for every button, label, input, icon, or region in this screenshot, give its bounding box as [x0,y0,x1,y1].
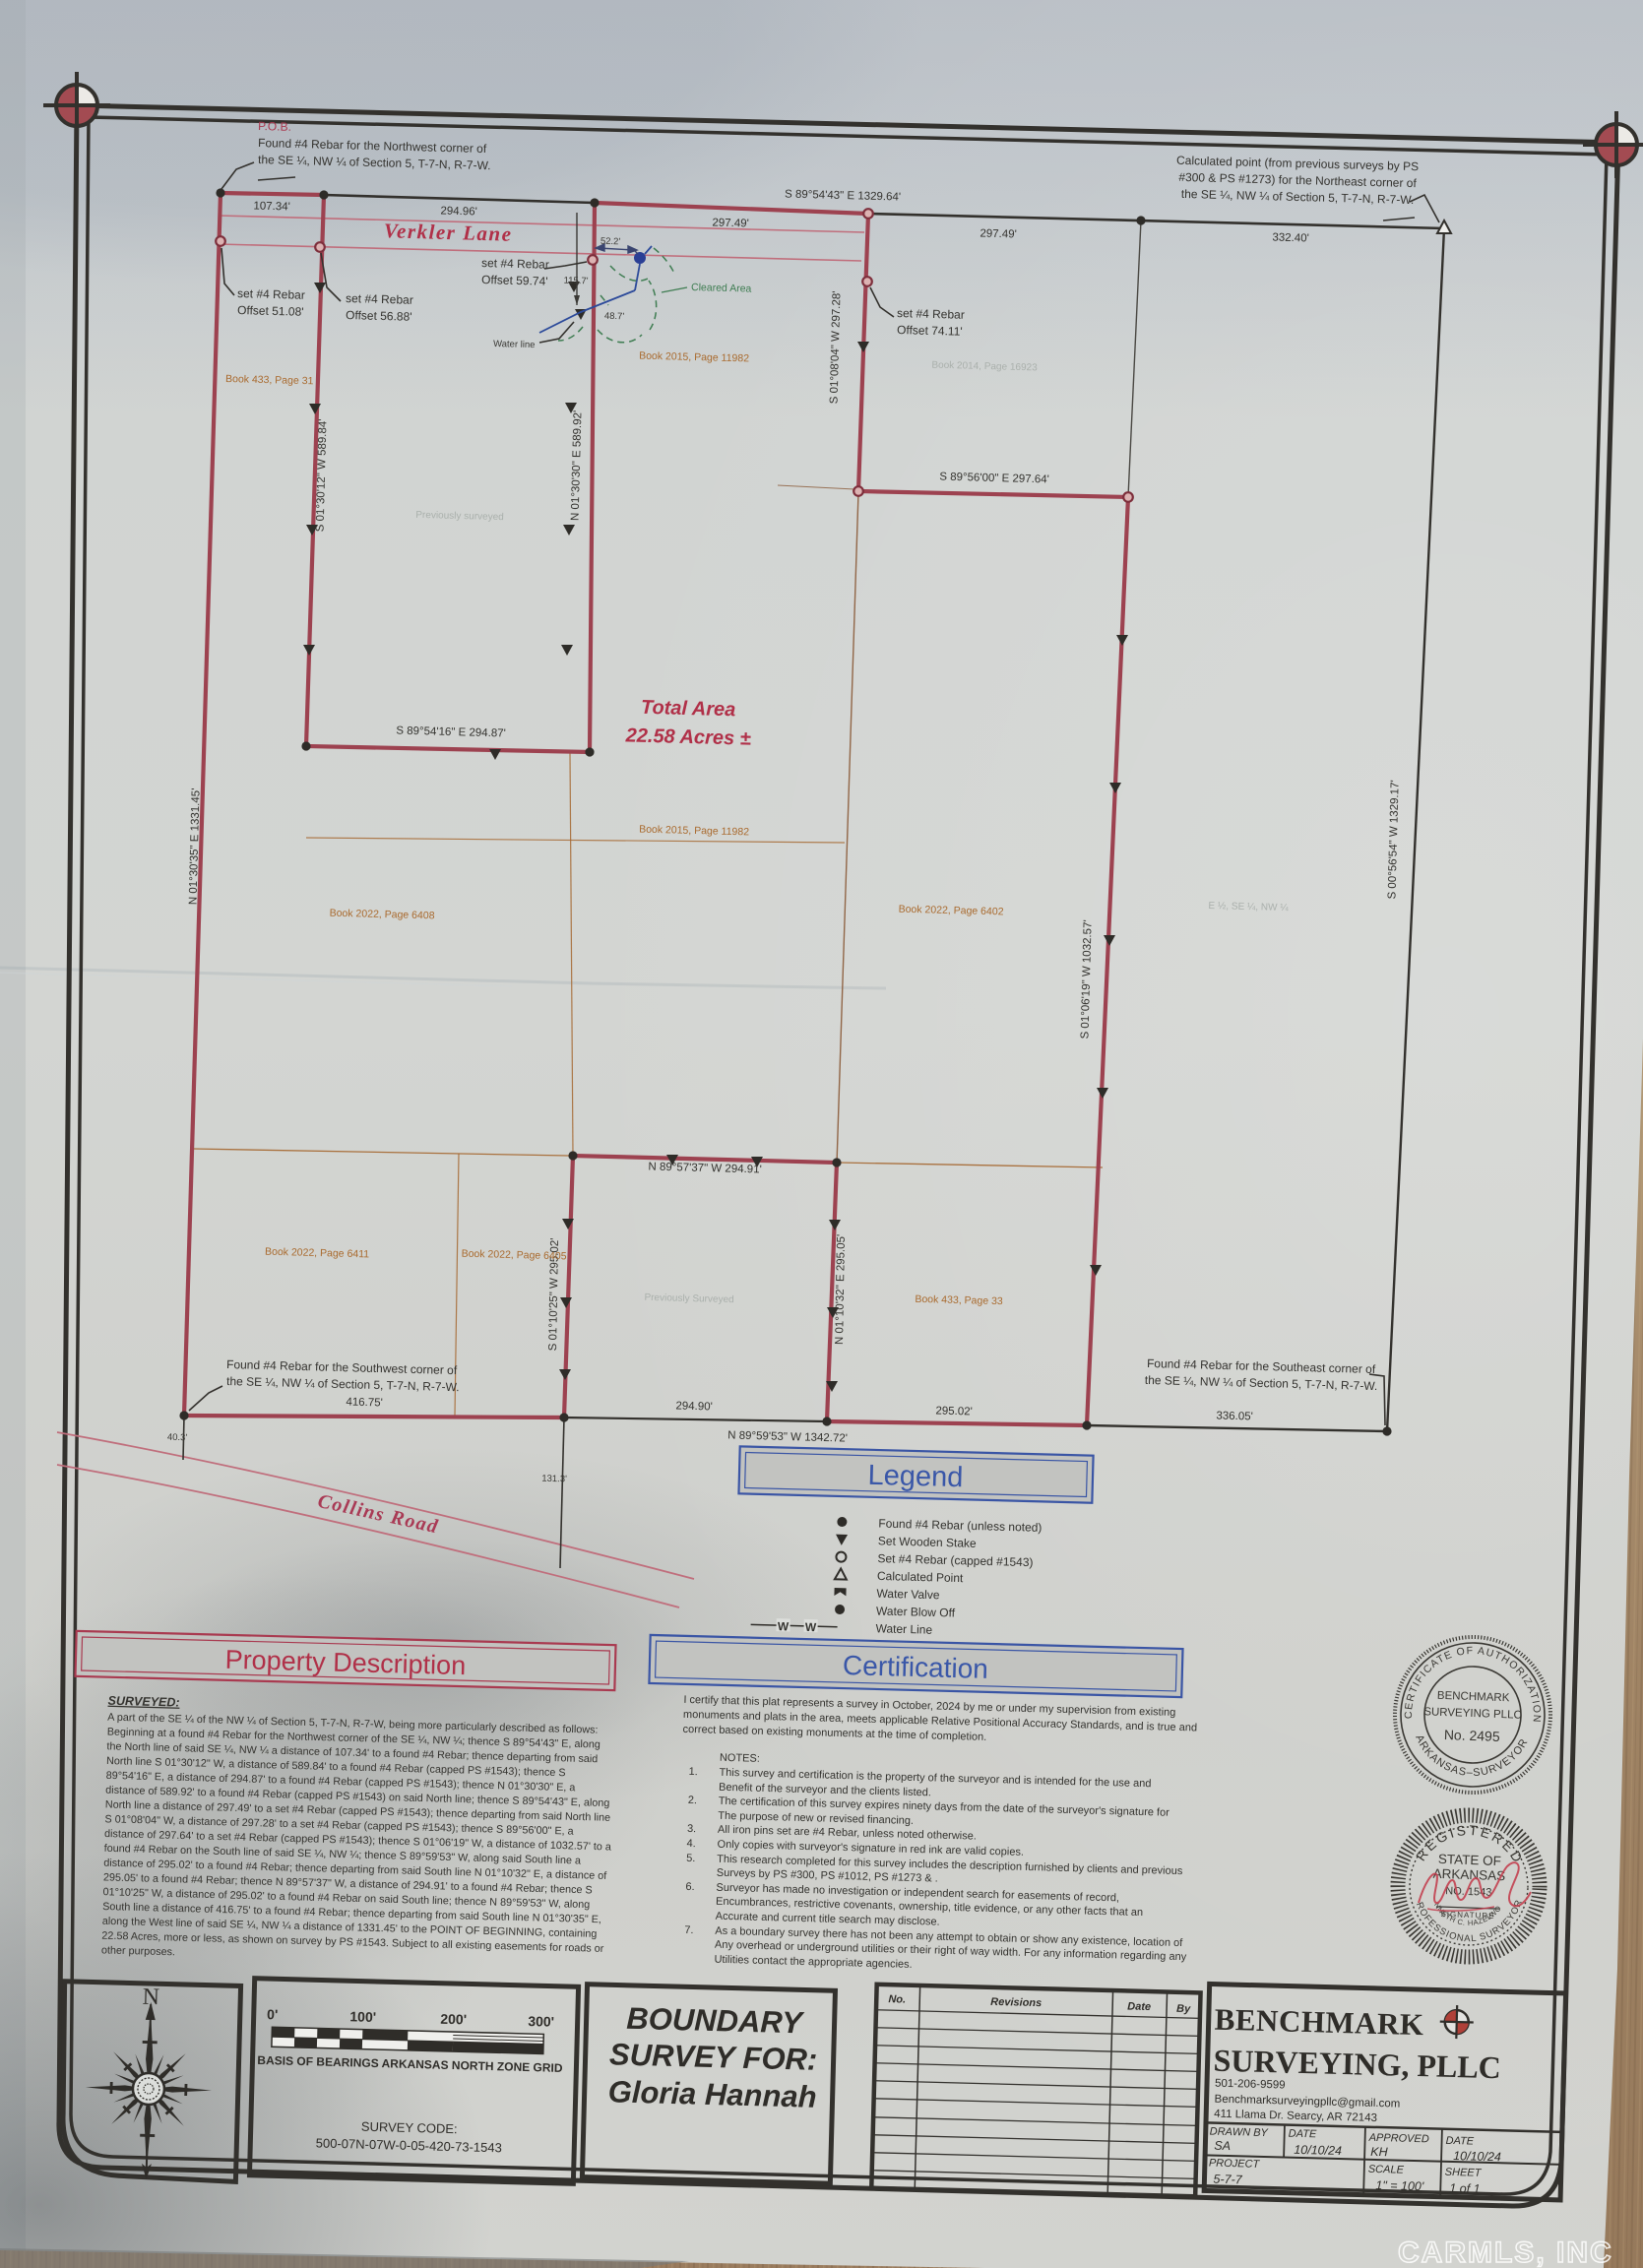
svg-text:48.7': 48.7' [604,311,625,323]
svg-text:NOTES:: NOTES: [720,1752,760,1765]
svg-text:336.05': 336.05' [1216,1411,1253,1423]
svg-text:W: W [778,1619,790,1633]
svg-text:BOUNDARYSURVEY FOR:Gloria Hann: BOUNDARYSURVEY FOR:Gloria Hannah [607,2000,819,2114]
svg-text:Book 433, Page 31: Book 433, Page 31 [225,373,314,387]
svg-text:CARMLS, INC: CARMLS, INC [1398,2236,1613,2268]
svg-text:416.75': 416.75' [346,1397,383,1410]
svg-text:No. 2495: No. 2495 [1444,1727,1501,1744]
svg-text:E ½, SE ¼, NW ¼: E ½, SE ¼, NW ¼ [1208,900,1289,913]
svg-text:Book 433, Page 33: Book 433, Page 33 [915,1293,1003,1307]
svg-text:BENCHMARK: BENCHMARK [1214,2002,1424,2043]
svg-text:Offset 59.74': Offset 59.74' [481,273,548,288]
svg-text:set #4 Rebar: set #4 Rebar [346,291,413,307]
svg-text:52.2': 52.2' [600,236,621,248]
svg-text:Verkler Lane: Verkler Lane [384,219,513,246]
svg-text:Water Valve: Water Valve [876,1587,940,1603]
svg-text:40.3': 40.3' [167,1432,188,1444]
svg-text:295.02': 295.02' [935,1406,973,1418]
svg-text:294.90': 294.90' [675,1401,713,1414]
svg-text:107.34': 107.34' [253,201,290,214]
svg-text:Cleared Area: Cleared Area [691,282,752,295]
svg-text:set #4 Rebar: set #4 Rebar [237,286,305,302]
svg-text:297.49': 297.49' [712,218,749,230]
svg-text:W: W [805,1620,817,1634]
svg-text:Set Wooden Stake: Set Wooden Stake [878,1534,978,1550]
svg-text:22.58 Acres ±: 22.58 Acres ± [624,724,751,749]
svg-text:Calculated Point: Calculated Point [877,1569,964,1585]
svg-text:297.49': 297.49' [979,228,1017,241]
svg-text:Water Blow Off: Water Blow Off [876,1604,956,1619]
svg-text:115.7': 115.7' [563,276,588,287]
svg-text:294.96': 294.96' [440,206,477,219]
svg-text:set #4 Rebar: set #4 Rebar [481,256,549,272]
svg-text:P.O.B.: P.O.B. [258,119,291,134]
svg-text:Water Line: Water Line [875,1621,932,1637]
svg-text:N: N [142,1984,159,2010]
svg-text:Certification: Certification [843,1650,989,1684]
svg-text:N 01°10'32" E 295.05': N 01°10'32" E 295.05' [834,1234,848,1345]
svg-text:Previously surveyed: Previously surveyed [415,510,504,523]
svg-text:332.40': 332.40' [1272,232,1309,245]
svg-text:Offset 74.11': Offset 74.11' [897,323,963,339]
svg-text:Offset 56.88': Offset 56.88' [346,308,412,324]
svg-text:131.3': 131.3' [541,1474,567,1485]
svg-text:set #4 Rebar: set #4 Rebar [897,306,965,322]
svg-text:SURVEY CODE:: SURVEY CODE: [361,2119,458,2137]
svg-text:Legend: Legend [867,1460,964,1494]
svg-text:Water line: Water line [493,339,536,350]
svg-text:Offset 51.08': Offset 51.08' [237,303,304,319]
svg-text:SURVEYED:: SURVEYED: [107,1694,179,1710]
svg-text:Property Description: Property Description [224,1645,466,1680]
svg-text:Total Area: Total Area [641,697,736,722]
svg-text:ARKANSAS: ARKANSAS [1432,1866,1505,1884]
